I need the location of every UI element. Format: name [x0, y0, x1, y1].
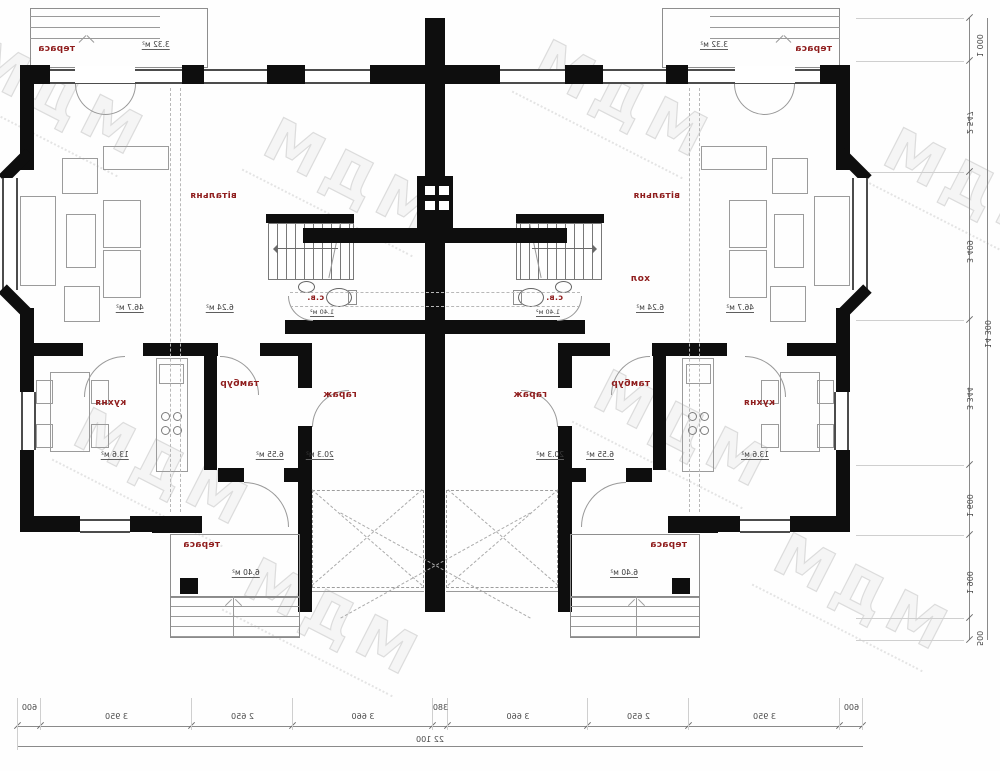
chimney-flue	[439, 186, 449, 195]
mirrored-print-layer: МДМ МДМ МДМ МДМ МДМ МДМ МДМ МДМ тераса 3…	[0, 0, 1000, 771]
chimney-flue	[425, 201, 435, 210]
party-wall-group	[0, 0, 1000, 771]
party-wall	[425, 18, 445, 612]
cross-wall	[370, 228, 500, 243]
building-plan: тераса 3.32 м²	[0, 0, 1000, 771]
floor-plan-canvas: МДМ МДМ МДМ МДМ МДМ МДМ МДМ МДМ тераса 3…	[0, 0, 1000, 771]
canopy-dashed-line	[290, 292, 580, 293]
chimney-flue	[425, 186, 435, 195]
chimney-flue	[439, 201, 449, 210]
canopy-dashed-line	[290, 306, 580, 307]
